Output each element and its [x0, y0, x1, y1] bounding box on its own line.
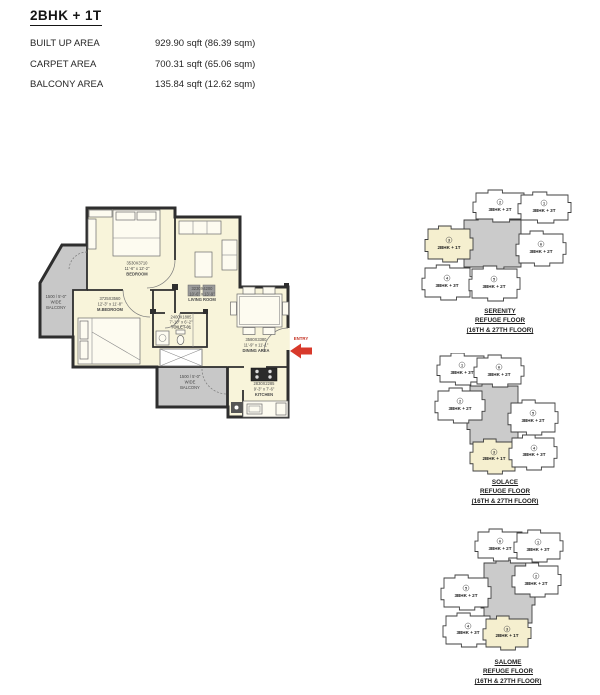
svg-text:WIDE: WIDE — [185, 380, 196, 385]
svg-text:10'-6" x 13'-9": 10'-6" x 13'-9" — [189, 292, 215, 297]
svg-text:3BHK + 2T: 3BHK + 2T — [521, 418, 544, 423]
shaft-box — [160, 349, 202, 366]
svg-text:5: 5 — [493, 277, 495, 281]
svg-text:9'-3" x 7'-6": 9'-3" x 7'-6" — [254, 387, 275, 392]
svg-text:11'-6" x 12'-2": 11'-6" x 12'-2" — [125, 266, 150, 271]
unit-blob — [474, 355, 524, 387]
svg-text:1: 1 — [461, 363, 463, 367]
svg-text:3725X3560: 3725X3560 — [100, 296, 122, 301]
svg-text:3BHK + 3T: 3BHK + 3T — [435, 283, 458, 288]
svg-text:11'-9" x 11'-1": 11'-9" x 11'-1" — [244, 343, 269, 348]
svg-text:LIVING ROOM: LIVING ROOM — [188, 297, 216, 302]
keyplan-caption-salome: SALOME REFUGE FLOOR (16TH & 27TH FLOOR) — [428, 658, 588, 686]
svg-text:DINING AREA: DINING AREA — [243, 348, 270, 353]
keyplan-caption-solace: SOLACE REFUGE FLOOR (16TH & 27TH FLOOR) — [430, 478, 580, 506]
svg-text:3BHK + 2T: 3BHK + 2T — [524, 581, 547, 586]
svg-text:3580X3380: 3580X3380 — [246, 337, 268, 342]
room-label-kitchen: 2830X2285 9'-3" x 7'-6" KITCHEN — [254, 381, 276, 397]
svg-text:3BHK + 3T: 3BHK + 3T — [456, 630, 479, 635]
entry-arrow-icon — [290, 344, 312, 359]
svg-text:2830X2285: 2830X2285 — [254, 381, 276, 386]
unit-blob-highlighted — [425, 226, 473, 262]
page-title: 2BHK + 1T — [30, 8, 102, 26]
svg-text:1: 1 — [543, 201, 545, 205]
svg-text:3BHK + 2T: 3BHK + 2T — [454, 593, 477, 598]
svg-text:BALCONY: BALCONY — [46, 305, 66, 310]
column-block — [172, 284, 178, 290]
svg-text:6: 6 — [498, 365, 500, 369]
svg-text:3BHK + 3T: 3BHK + 3T — [450, 370, 473, 375]
svg-text:M.BEDROOM: M.BEDROOM — [97, 307, 124, 312]
entry-marker: ENTRY — [290, 336, 312, 359]
area-label: BUILT UP AREA — [30, 38, 155, 49]
svg-text:3: 3 — [493, 450, 495, 454]
keyplan-caption-serenity: SERENITY REFUGE FLOOR (16TH & 27TH FLOOR… — [420, 307, 580, 335]
keyplan-salome: 6 3BHK + 2T 1 3BHK + 3T 5 3BHK + 2T 2 3B… — [428, 523, 588, 686]
svg-text:6: 6 — [540, 242, 542, 246]
area-row-builtup: BUILT UP AREA929.90 sqft (86.39 sqm) — [30, 38, 330, 49]
entry-label: ENTRY — [294, 336, 309, 341]
svg-text:2BHK + 1T: 2BHK + 1T — [437, 245, 460, 250]
svg-text:BEDROOM: BEDROOM — [126, 272, 148, 277]
floor-plan-page: 2BHK + 1T BUILT UP AREA929.90 sqft (86.3… — [0, 0, 600, 695]
area-label: BALCONY AREA — [30, 79, 155, 90]
svg-text:2: 2 — [499, 200, 501, 204]
svg-text:BALCONY: BALCONY — [180, 385, 200, 390]
svg-text:1500 / 5'-0": 1500 / 5'-0" — [46, 294, 67, 299]
column-block — [284, 283, 289, 288]
svg-text:KITCHEN: KITCHEN — [255, 392, 273, 397]
svg-text:1: 1 — [537, 540, 539, 544]
keyplan-solace: 1 3BHK + 3T 6 3BHK + 2T 2 3BHK + 2T 5 3B… — [430, 353, 580, 506]
svg-text:2BHK + 1T: 2BHK + 1T — [482, 456, 505, 461]
svg-text:3530X3710: 3530X3710 — [127, 261, 149, 266]
svg-text:3BHK + 2T: 3BHK + 2T — [448, 406, 471, 411]
svg-text:6: 6 — [499, 539, 501, 543]
area-label: CARPET AREA — [30, 59, 155, 70]
unit-blob — [512, 563, 561, 597]
svg-text:3BHK + 2T: 3BHK + 2T — [488, 207, 511, 212]
column-block — [150, 309, 156, 314]
svg-text:2: 2 — [459, 399, 461, 403]
keyplan-serenity: 2 3BHK + 2T 1 3BHK + 3T 3 2BHK + 1T 6 3B… — [420, 182, 580, 335]
svg-text:5: 5 — [532, 411, 534, 415]
room-label-living: 3230X4200 10'-6" x 13'-9" LIVING ROOM — [188, 286, 216, 302]
unit-blob — [514, 530, 563, 562]
svg-text:3BHK + 2T: 3BHK + 2T — [487, 372, 510, 377]
area-row-balcony: BALCONY AREA135.84 sqft (12.62 sqm) — [30, 79, 330, 90]
svg-text:3BHK + 3T: 3BHK + 3T — [522, 452, 545, 457]
room-label-toilet: 2400X1885 7'-10" x 6'-2" TOILET-01 — [170, 315, 193, 330]
room-label-mbedroom: 3725X3560 12'-3" x 11'-8" M.BEDROOM — [97, 296, 124, 312]
floor-plan-drawing: 3530X3710 11'-6" x 12'-2" BEDROOM 3230X4… — [30, 180, 330, 442]
area-value: 700.31 sqft (65.06 sqm) — [155, 59, 255, 70]
svg-text:TOILET-01: TOILET-01 — [171, 325, 192, 330]
svg-text:2BHK + 1T: 2BHK + 1T — [495, 633, 518, 638]
area-row-carpet: CARPET AREA700.31 sqft (65.06 sqm) — [30, 59, 330, 70]
svg-text:2: 2 — [535, 574, 537, 578]
svg-text:3BHK + 2T: 3BHK + 2T — [529, 249, 552, 254]
stove-icon — [251, 368, 277, 381]
svg-text:3: 3 — [448, 238, 450, 242]
svg-text:12'-3" x 11'-8": 12'-3" x 11'-8" — [98, 302, 123, 307]
svg-text:3BHK + 3T: 3BHK + 3T — [526, 547, 549, 552]
area-value: 135.84 sqft (12.62 sqm) — [155, 79, 255, 90]
svg-text:5: 5 — [465, 586, 467, 590]
master-bed-icon — [78, 318, 140, 364]
column-block — [203, 309, 208, 314]
area-value: 929.90 sqft (86.39 sqm) — [155, 38, 255, 49]
svg-text:3BHK + 3T: 3BHK + 3T — [532, 208, 555, 213]
room-label-bedroom: 3530X3710 11'-6" x 12'-2" BEDROOM — [125, 261, 150, 277]
svg-text:1500 / 5'-0": 1500 / 5'-0" — [180, 374, 201, 379]
svg-text:3BHK + 2T: 3BHK + 2T — [482, 284, 505, 289]
svg-text:WIDE: WIDE — [51, 300, 62, 305]
svg-text:3BHK + 2T: 3BHK + 2T — [488, 546, 511, 551]
svg-text:3: 3 — [506, 627, 508, 631]
room-label-dining: 3580X3380 11'-9" x 11'-1" DINING AREA — [243, 337, 270, 353]
svg-text:3230X4200: 3230X4200 — [192, 286, 214, 291]
